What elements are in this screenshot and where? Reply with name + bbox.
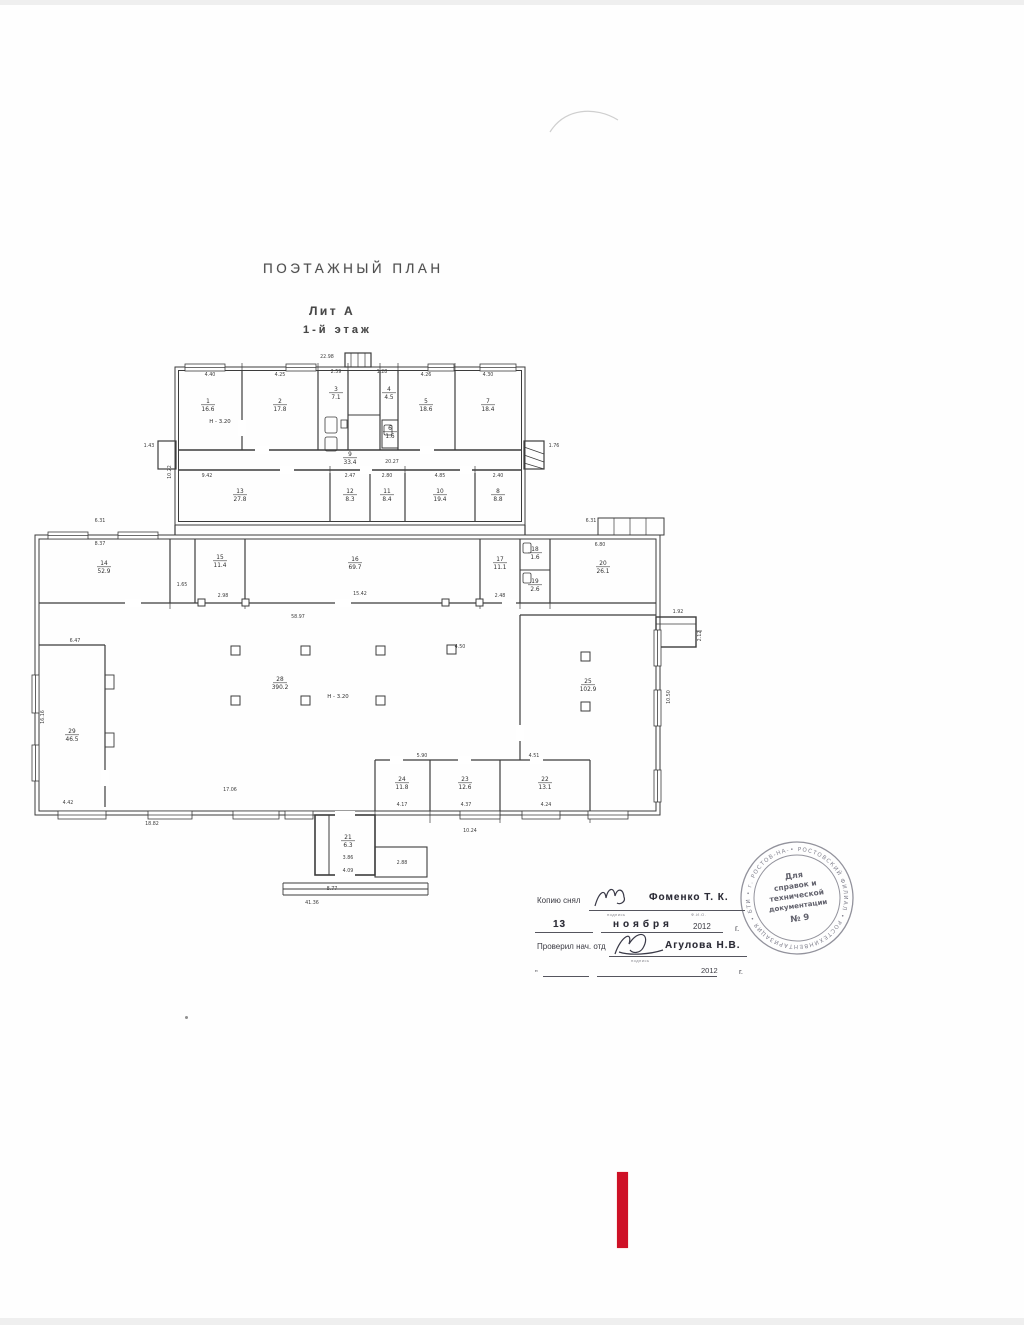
dimension-label: 1.76 xyxy=(549,443,560,449)
dimension-label: 10.50 xyxy=(666,690,672,704)
dimension-label: 4.26 xyxy=(421,372,432,378)
room-area: 11.4 xyxy=(214,563,227,569)
room-area: 69.7 xyxy=(349,565,362,571)
room-number: 17 xyxy=(496,557,504,563)
date-year: 2012 xyxy=(693,922,711,931)
date-month: ноября xyxy=(613,919,673,930)
room-number: 8 xyxy=(496,489,500,495)
dimension-label: 4.50 xyxy=(455,644,466,650)
room-area: 17.8 xyxy=(274,407,287,413)
room-number: 29 xyxy=(68,729,76,735)
micro-label-fio: Ф.И.О. xyxy=(691,912,706,917)
blank-line-1 xyxy=(543,976,589,977)
room-number: 19 xyxy=(531,579,539,585)
room-number: 6 xyxy=(388,426,392,432)
dimension-label: 18.82 xyxy=(145,821,159,827)
dimension-label: 2.98 xyxy=(218,593,229,599)
dimension-label: 4.24 xyxy=(541,802,552,808)
room-number: 11 xyxy=(383,489,391,495)
copied-by-name: Фоменко Т. К. xyxy=(649,892,729,903)
windows xyxy=(32,364,661,819)
dimension-label: 4.09 xyxy=(343,868,354,874)
dimension-label: 2.80 xyxy=(382,473,393,479)
room-number: 21 xyxy=(344,835,352,841)
room-area: 46.5 xyxy=(66,737,79,743)
room-area: 1.6 xyxy=(385,434,395,440)
name-line-2 xyxy=(663,956,747,957)
room-number: 3 xyxy=(334,387,338,393)
dimension-label: 1.65 xyxy=(177,582,188,588)
red-marker xyxy=(617,1172,628,1248)
micro-label-sign-2: подпись xyxy=(631,958,650,963)
room-number: 24 xyxy=(398,777,406,783)
room-area: 4.5 xyxy=(384,395,394,401)
room-number: 13 xyxy=(236,489,244,495)
room-number: 14 xyxy=(100,561,108,567)
dimension-label: 6.31 xyxy=(95,518,106,524)
copied-by-label: Копию снял xyxy=(537,896,581,905)
room-area: 8.8 xyxy=(493,497,503,503)
scan-artifact-curve xyxy=(540,100,630,150)
room-number: 16 xyxy=(351,557,359,563)
room-area: 33.4 xyxy=(344,460,357,466)
room-area: 1.6 xyxy=(530,555,540,561)
checked-by-label: Проверил нач. отд xyxy=(537,942,606,951)
dimension-label: 10.24 xyxy=(463,828,477,834)
day-line xyxy=(535,932,593,933)
room-number: 25 xyxy=(584,679,592,685)
room-area: 18.4 xyxy=(482,407,495,413)
dimension-label: 8.37 xyxy=(95,541,106,547)
columns xyxy=(198,599,590,711)
room-area: 102.9 xyxy=(580,687,597,693)
room-area: 2.6 xyxy=(530,587,540,593)
room-area: 6.3 xyxy=(343,843,353,849)
dimension-label: 4.85 xyxy=(435,473,446,479)
dimension-label: 2.12 xyxy=(697,631,703,642)
dimension-label: 16.16 xyxy=(40,710,46,724)
dimension-label: 6.47 xyxy=(70,638,81,644)
room-area: 27.8 xyxy=(234,497,247,503)
room-number: 10 xyxy=(436,489,444,495)
row4-year: 2012 xyxy=(701,966,718,975)
dimension-label: 58.97 xyxy=(291,614,305,620)
signature-squiggle-1 xyxy=(591,886,647,912)
room-number: 1 xyxy=(206,399,210,405)
dimension-label: 2.48 xyxy=(495,593,506,599)
room-area: 8.3 xyxy=(345,497,355,503)
stamp-center-text: Для справок и технической документации №… xyxy=(764,867,830,928)
dimension-label: 15.42 xyxy=(353,591,367,597)
room-area: 18.6 xyxy=(420,407,433,413)
dimension-label: 20.27 xyxy=(385,459,399,465)
dimension-label: 4.37 xyxy=(461,802,472,808)
dimension-label: 2.47 xyxy=(345,473,356,479)
dimension-label: 4.51 xyxy=(529,753,540,759)
room-number: 4 xyxy=(387,387,391,393)
dimension-label: 2.59 xyxy=(331,369,342,375)
dimension-label: 4.30 xyxy=(483,372,494,378)
dimension-label: 41.36 xyxy=(305,900,319,906)
date-year-suffix: г. xyxy=(735,924,739,933)
dimension-label: 4.17 xyxy=(397,802,408,808)
room-area: 52.9 xyxy=(98,569,111,575)
dimension-label: 4.25 xyxy=(275,372,286,378)
dimension-label: 6.31 xyxy=(586,518,597,524)
room-number: 2 xyxy=(278,399,282,405)
room-number: 28 xyxy=(276,677,284,683)
room-area: 11.1 xyxy=(494,565,507,571)
dimension-label: 17.06 xyxy=(223,787,237,793)
room-and-dimension-labels: 116.6217.837.144.561.6518.6718.4933.4132… xyxy=(40,354,703,906)
blank-line-2 xyxy=(597,976,717,977)
dimension-label: 10.22 xyxy=(167,465,173,479)
dimension-label: 8.77 xyxy=(327,886,338,892)
room-number: 12 xyxy=(346,489,354,495)
dimension-label: 4.42 xyxy=(63,800,74,806)
height-note: Н - 3.20 xyxy=(209,419,231,425)
signature-squiggle-2 xyxy=(611,930,671,960)
room-area: 8.4 xyxy=(382,497,392,503)
scan-edge-top xyxy=(0,0,1024,5)
svg-text:№ 9: № 9 xyxy=(790,913,810,926)
dimension-label: 6.80 xyxy=(595,542,606,548)
micro-label-sign: подпись xyxy=(607,912,626,917)
room-number: 18 xyxy=(531,547,539,553)
room-number: 22 xyxy=(541,777,549,783)
dimension-label: 1.28 xyxy=(377,369,388,375)
scanned-floor-plan-page: ПОЭТАЖНЫЙ ПЛАН Лит А 1-й этаж xyxy=(0,0,1024,1325)
scan-edge-bottom xyxy=(0,1318,1024,1325)
row4-tick: „ xyxy=(535,964,538,973)
dimension-label: 2.40 xyxy=(493,473,504,479)
room-area: 26.1 xyxy=(597,569,610,575)
checked-by-name: Агулова Н.В. xyxy=(665,940,741,951)
room-area: 12.6 xyxy=(459,785,472,791)
room-area: 11.8 xyxy=(396,785,409,791)
room-number: 9 xyxy=(348,452,352,458)
dimension-label: 2.88 xyxy=(397,860,408,866)
row4-year-suffix: г. xyxy=(739,967,743,976)
dimension-label: 4.40 xyxy=(205,372,216,378)
floor-label: 1-й этаж xyxy=(303,324,372,336)
litera-label: Лит А xyxy=(309,304,355,318)
scan-artifact-dot xyxy=(185,1016,188,1019)
page-title: ПОЭТАЖНЫЙ ПЛАН xyxy=(263,261,444,276)
dimension-label: 9.42 xyxy=(202,473,213,479)
room-number: 15 xyxy=(216,555,224,561)
dimension-label: 1.92 xyxy=(673,609,684,615)
floor-plan-drawing: 116.6217.837.144.561.6518.6718.4933.4132… xyxy=(30,345,720,915)
room-number: 5 xyxy=(424,399,428,405)
room-area: 13.1 xyxy=(539,785,552,791)
height-note: Н - 3.20 xyxy=(327,694,349,700)
dimension-label: 3.86 xyxy=(343,855,354,861)
dimension-label: 1.43 xyxy=(144,443,155,449)
room-number: 20 xyxy=(599,561,607,567)
room-number: 23 xyxy=(461,777,469,783)
room-number: 7 xyxy=(486,399,490,405)
dimension-label: 5.90 xyxy=(417,753,428,759)
room-area: 19.4 xyxy=(434,497,447,503)
room-area: 16.6 xyxy=(202,407,215,413)
dimension-label: 22.98 xyxy=(320,354,334,360)
room-area: 390.2 xyxy=(272,685,289,691)
name-line-1 xyxy=(647,910,745,911)
signature-block: Копию снял Фоменко Т. К. подпись Ф.И.О. … xyxy=(533,886,749,980)
room-area: 7.1 xyxy=(331,395,341,401)
date-day: 13 xyxy=(553,919,566,930)
door-openings xyxy=(101,420,543,877)
